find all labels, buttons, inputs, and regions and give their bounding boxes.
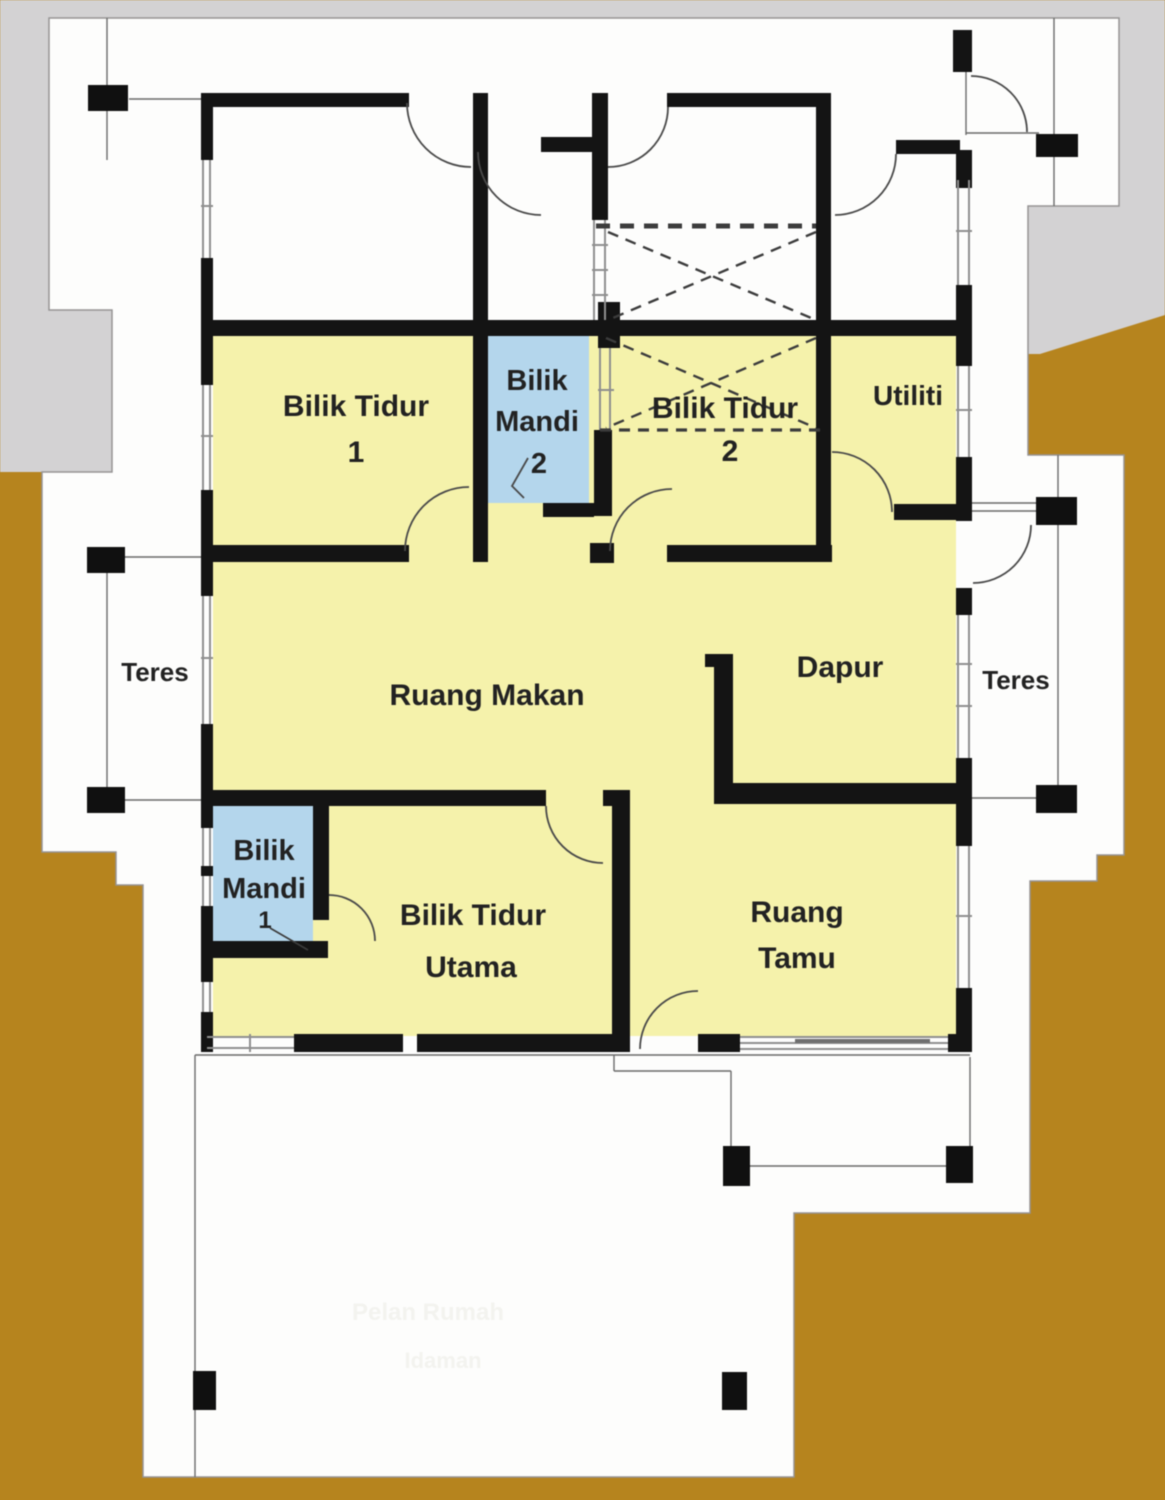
svg-text:Bilik Tidur: Bilik Tidur (652, 392, 798, 425)
svg-text:Tamu: Tamu (758, 942, 836, 975)
svg-text:Mandi: Mandi (495, 406, 579, 438)
svg-text:1: 1 (348, 436, 365, 469)
svg-text:1: 1 (258, 907, 271, 934)
svg-text:Pelan Rumah: Pelan Rumah (352, 1299, 504, 1326)
svg-text:Utiliti: Utiliti (873, 380, 943, 411)
svg-text:2: 2 (722, 435, 739, 468)
svg-text:Bilik Tidur: Bilik Tidur (400, 899, 546, 932)
svg-text:Utama: Utama (425, 951, 517, 984)
svg-text:Bilik: Bilik (233, 835, 295, 867)
svg-text:Dapur: Dapur (797, 651, 884, 684)
svg-text:Teres: Teres (121, 657, 188, 687)
svg-text:Mandi: Mandi (222, 873, 306, 905)
svg-text:Ruang Makan: Ruang Makan (389, 679, 584, 712)
svg-text:Bilik: Bilik (506, 365, 568, 397)
svg-text:Idaman: Idaman (404, 1348, 481, 1373)
svg-text:Teres: Teres (982, 665, 1049, 695)
svg-text:Bilik Tidur: Bilik Tidur (283, 390, 429, 423)
svg-text:Ruang: Ruang (750, 896, 843, 929)
svg-text:2: 2 (531, 448, 547, 480)
